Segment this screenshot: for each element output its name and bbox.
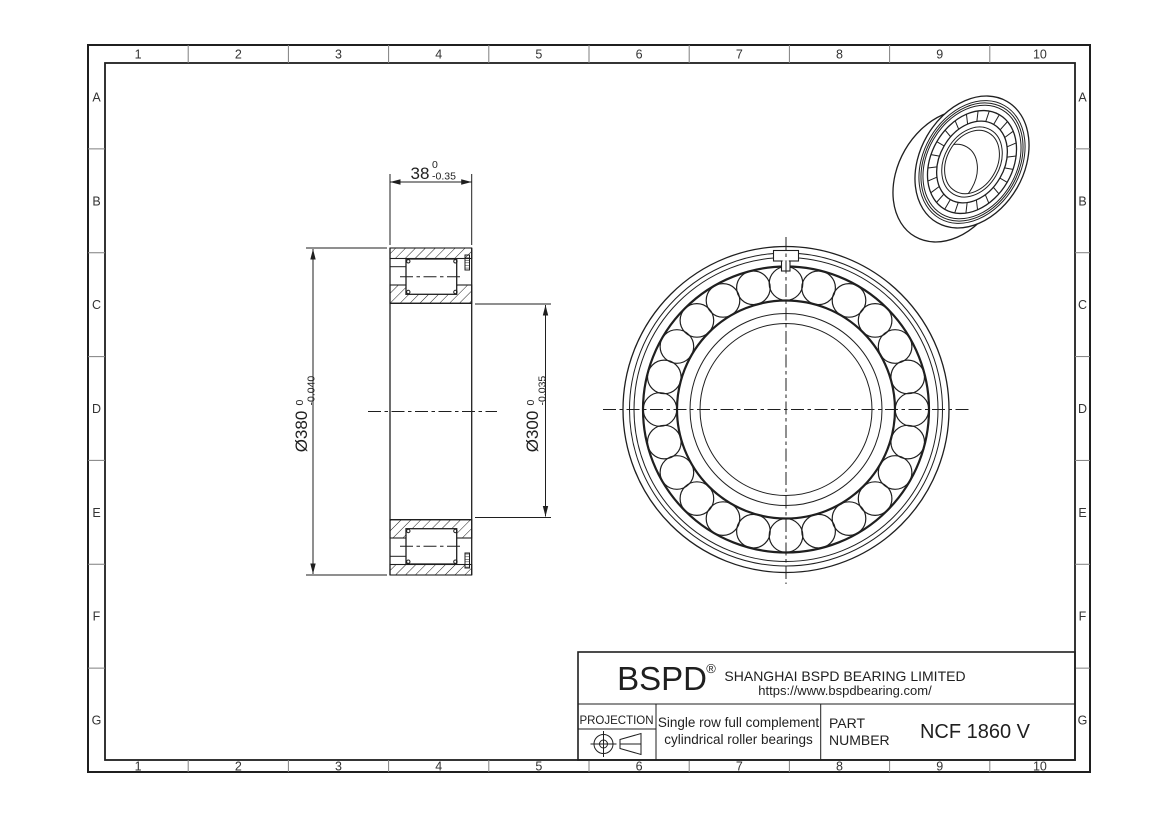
grid-col-label-bottom: 5 [535,760,542,774]
grid-col-label-top: 7 [736,48,743,62]
company-name: SHANGHAI BSPD BEARING LIMITED [724,668,965,684]
bearing-description-line2: cylindrical roller bearings [664,732,813,747]
arrow-left [390,179,401,184]
arrow-right [461,179,472,184]
dim-width-tol-lower: -0.35 [432,171,456,183]
dimension-width: 38 0 -0.35 [390,159,472,245]
grid-col-label-top: 4 [435,48,442,62]
part-number-label-line2: NUMBER [829,732,890,748]
grid-col-label-top: 10 [1033,48,1047,62]
projection-label: PROJECTION [579,715,653,727]
grid-col-label-top: 8 [836,48,843,62]
front-view [603,237,969,584]
arrow-up [543,305,548,316]
grid-col-label-top: 1 [135,48,142,62]
roller [802,514,836,548]
grid-row-label-left: F [93,610,101,624]
section-view [368,248,497,575]
grid-col-label-top: 2 [235,48,242,62]
snap-ring-bottom [465,553,470,568]
roller [737,514,771,548]
grid-row-label-left: C [92,298,101,312]
grid-col-label-top: 9 [936,48,943,62]
grid-row-label-right: C [1078,298,1087,312]
part-number-value: NCF 1860 V [920,721,1031,743]
roller [802,271,836,305]
bearing-description-line1: Single row full complement [658,715,820,730]
grid-col-label-bottom: 9 [936,760,943,774]
roller [648,360,682,394]
registered-trademark-icon: ® [706,661,716,676]
roller [648,425,682,459]
outer-ring-hatch-bottom [390,565,472,576]
grid-row-label-left: A [92,90,101,104]
grid-col-label-top: 3 [335,48,342,62]
roller-section-top [400,259,462,294]
grid-row-label-right: F [1079,610,1087,624]
grid-col-label-bottom: 3 [335,760,342,774]
grid-row-label-left: D [92,402,101,416]
outer-ring-hatch-top [390,248,472,259]
snap-ring-top [465,255,470,270]
title-block: BSPD ® SHANGHAI BSPD BEARING LIMITED htt… [578,652,1075,760]
grid-col-label-bottom: 6 [636,760,643,774]
roller [737,271,771,305]
grid-col-label-top: 5 [535,48,542,62]
grid-row-label-right: D [1078,402,1087,416]
grid-col-label-bottom: 1 [135,760,142,774]
dim-od-tol-lower: -0.040 [306,376,318,406]
drawing-sheet: 1122334455667788991010AABBCCDDEEFFGG [0,0,1169,826]
grid-col-label-bottom: 7 [736,760,743,774]
dim-width-value: 38 [411,164,430,183]
company-website: https://www.bspdbearing.com/ [758,683,932,698]
dim-bore-tol-upper: 0 [525,400,537,406]
grid-col-label-bottom: 4 [435,760,442,774]
dim-bore-tol-lower: -0.035 [537,376,549,406]
grid-row-label-left: B [92,194,100,208]
isometric-view [870,75,1052,262]
first-angle-projection-icon [591,731,642,757]
arrow-down [543,506,548,517]
roller [891,360,925,394]
brand-logo: BSPD [617,660,707,697]
grid-row-label-right: A [1078,90,1087,104]
grid-row-label-left: G [92,714,102,728]
grid-col-label-bottom: 8 [836,760,843,774]
grid-row-label-right: E [1078,506,1086,520]
arrow-up [310,249,315,260]
grid-row-label-right: B [1078,194,1086,208]
grid-col-label-top: 6 [636,48,643,62]
drawing-canvas: 1122334455667788991010AABBCCDDEEFFGG [0,0,1169,826]
dim-od-tol-upper: 0 [294,400,306,406]
grid-col-label-bottom: 10 [1033,760,1047,774]
dimension-bore-diameter: Ø300 0 -0.035 [475,304,551,518]
dim-bore-value: Ø300 [523,411,542,453]
grid-col-label-bottom: 2 [235,760,242,774]
arrow-down [310,564,315,575]
part-number-label-line1: PART [829,715,865,731]
dim-od-value: Ø380 [292,411,311,453]
grid-row-label-left: E [92,506,100,520]
roller [891,425,925,459]
grid-row-label-right: G [1078,714,1088,728]
roller-section-bottom [400,529,462,564]
dim-width-tol-upper: 0 [432,159,438,171]
